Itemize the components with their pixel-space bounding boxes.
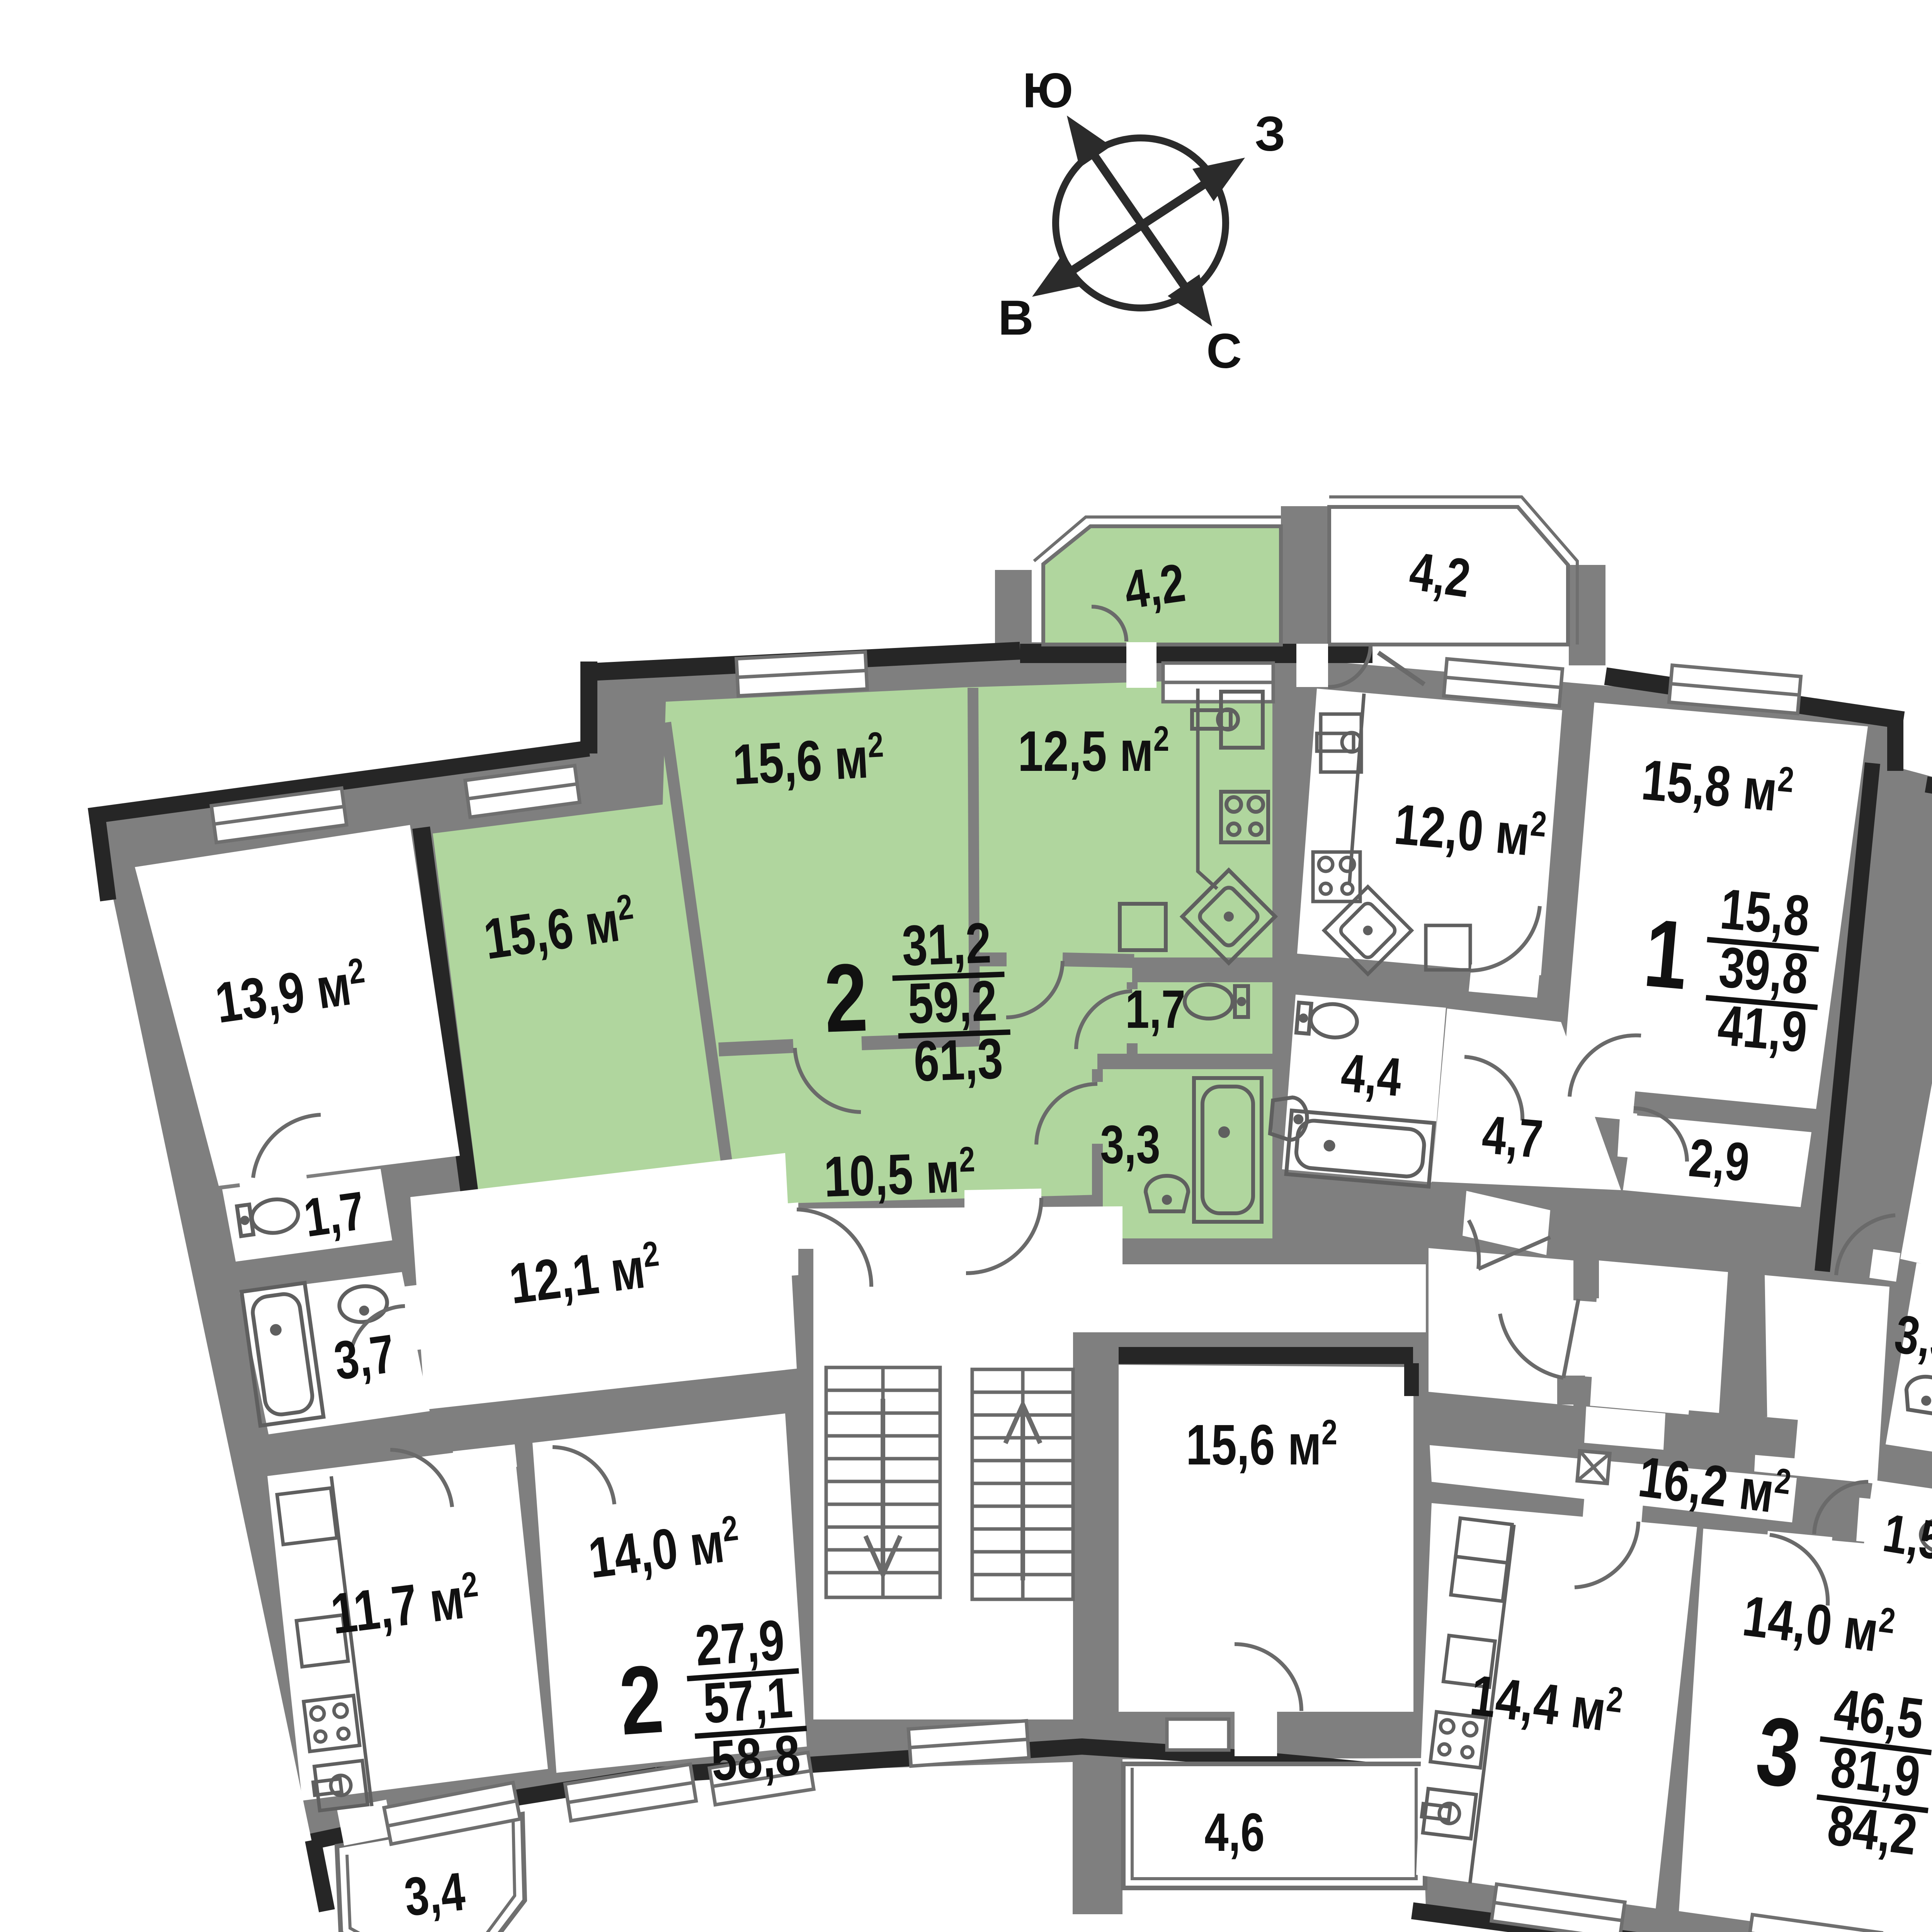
svg-text:3,7: 3,7 bbox=[330, 1323, 398, 1391]
svg-text:2: 2 bbox=[823, 943, 869, 1053]
svg-text:4,2: 4,2 bbox=[1406, 540, 1474, 609]
svg-text:31,2: 31,2 bbox=[901, 911, 992, 978]
svg-text:4,4: 4,4 bbox=[1339, 1042, 1404, 1108]
svg-text:С: С bbox=[1206, 323, 1242, 378]
svg-text:2,9: 2,9 bbox=[1687, 1127, 1752, 1193]
svg-text:В: В bbox=[998, 290, 1034, 345]
svg-text:2: 2 bbox=[616, 1645, 666, 1755]
svg-text:Ю: Ю bbox=[1023, 63, 1073, 118]
svg-text:3,3: 3,3 bbox=[1100, 1114, 1160, 1175]
svg-text:10,5 м2: 10,5 м2 bbox=[823, 1139, 976, 1209]
svg-text:З: З bbox=[1255, 106, 1286, 161]
svg-text:4,7: 4,7 bbox=[1480, 1104, 1545, 1170]
svg-text:12,5 м2: 12,5 м2 bbox=[1018, 719, 1169, 783]
svg-text:1,7: 1,7 bbox=[300, 1180, 368, 1248]
svg-text:15,6 м2: 15,6 м2 bbox=[1186, 1412, 1337, 1477]
svg-text:15,6 м2: 15,6 м2 bbox=[731, 724, 886, 797]
svg-text:4,6: 4,6 bbox=[1204, 1802, 1265, 1862]
svg-text:3,4: 3,4 bbox=[401, 1861, 468, 1927]
svg-text:4,2: 4,2 bbox=[1121, 552, 1189, 620]
svg-text:1,7: 1,7 bbox=[1125, 979, 1185, 1039]
svg-text:1,5: 1,5 bbox=[1879, 1502, 1932, 1571]
